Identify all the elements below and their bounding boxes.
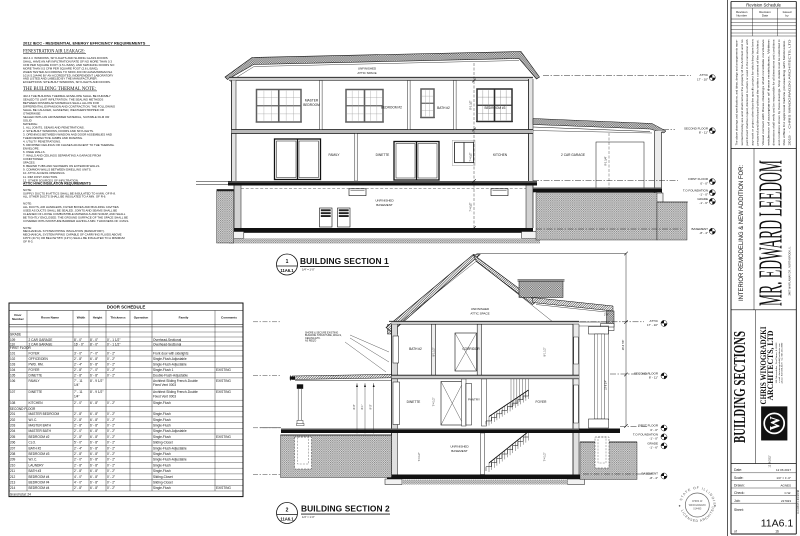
svg-text:2' - 8": 2' - 8" — [74, 368, 82, 372]
svg-text:-1' - 0": -1' - 0" — [649, 437, 658, 441]
svg-text:6' - 8": 6' - 8" — [90, 486, 98, 490]
svg-text:KITCHEN: KITCHEN — [29, 401, 44, 405]
svg-text:6' - 8": 6' - 8" — [90, 452, 98, 456]
svg-text:6' - 8": 6' - 8" — [90, 458, 98, 462]
svg-text:2' - 8": 2' - 8" — [74, 486, 82, 490]
svg-text:6' - 8": 6' - 8" — [90, 374, 98, 378]
svg-text:6' - 8": 6' - 8" — [90, 418, 98, 422]
svg-text:0' - 2": 0' - 2" — [107, 435, 115, 439]
svg-text:201: 201 — [10, 412, 16, 416]
svg-text:4' - 0": 4' - 0" — [74, 475, 82, 479]
svg-text:0' - 2": 0' - 2" — [107, 452, 115, 456]
svg-text:11A6.1: 11A6.1 — [761, 518, 794, 530]
svg-text:Single-Flush-Adjustable: Single-Flush-Adjustable — [153, 429, 187, 433]
svg-text:EXISTING: EXISTING — [216, 379, 231, 383]
svg-text:11A6.1: 11A6.1 — [280, 517, 294, 522]
svg-text:Single-Flush: Single-Flush — [153, 424, 171, 428]
svg-text:110 Oakwood Ave., Des Plaines,: 110 Oakwood Ave., Des Plaines, IL 60016 — [775, 342, 778, 383]
svg-text:Number: Number — [736, 14, 747, 18]
svg-text:0' - 2": 0' - 2" — [107, 401, 115, 405]
svg-text:MR. EDWARD LEEDOM: MR. EDWARD LEEDOM — [753, 160, 790, 306]
svg-text:FAMILY: FAMILY — [29, 379, 41, 383]
svg-text:W: W — [768, 416, 784, 431]
svg-text:11A6.1: 11A6.1 — [280, 268, 294, 273]
svg-text:Width: Width — [77, 315, 86, 319]
svg-text:dimensions shall verify and be: dimensions shall verify and be responsib… — [773, 38, 776, 145]
svg-text:0' - 2": 0' - 2" — [107, 463, 115, 467]
svg-text:1/4": 1/4" — [74, 383, 80, 387]
svg-text:Sliding-Closet: Sliding-Closet — [153, 475, 173, 479]
svg-text:Number: Number — [12, 317, 24, 321]
svg-text:EXISTING: EXISTING — [216, 435, 231, 439]
svg-text:Sliding-Closet: Sliding-Closet — [153, 441, 173, 445]
svg-text:7'-4 1/2": 7'-4 1/2" — [470, 202, 473, 211]
svg-text:1/4" = 1'-0": 1/4" = 1'-0" — [302, 267, 315, 271]
svg-text:16: 16 — [775, 530, 779, 534]
svg-text:7'-4 1/2": 7'-4 1/2" — [544, 452, 547, 461]
svg-text:16' - 0": 16' - 0" — [74, 342, 84, 346]
svg-text:BEDROOM #4: BEDROOM #4 — [29, 486, 50, 490]
svg-text:FOYER: FOYER — [29, 351, 41, 355]
svg-text:2' - 8": 2' - 8" — [74, 435, 82, 439]
svg-text:8'-1 1/2": 8'-1 1/2" — [433, 347, 436, 356]
svg-text:UNFINISHED: UNFINISHED — [375, 198, 394, 202]
svg-text:-8' - 4": -8' - 4" — [649, 476, 658, 480]
svg-text:9'-0": 9'-0" — [370, 404, 373, 409]
svg-text:6' - 8": 6' - 8" — [90, 469, 98, 473]
svg-text:Sheet:: Sheet: — [734, 508, 744, 512]
svg-text:8' - 9 1/2": 8' - 9 1/2" — [90, 379, 103, 383]
svg-text:8' - 0": 8' - 0" — [90, 338, 98, 342]
svg-text:Scale:: Scale: — [734, 476, 743, 480]
svg-text:BASEMENT: BASEMENT — [451, 449, 468, 453]
svg-text:6' - 8": 6' - 8" — [90, 463, 98, 467]
svg-text:Height: Height — [93, 315, 103, 319]
svg-text:Date:: Date: — [734, 468, 742, 472]
svg-text:0' - 2": 0' - 2" — [107, 441, 115, 445]
svg-text:PANTRY: PANTRY — [468, 398, 480, 402]
svg-text:KITCHEN: KITCHEN — [493, 153, 508, 157]
svg-text:BUILDING SECTIONS: BUILDING SECTIONS — [730, 331, 749, 443]
svg-text:0' - 2": 0' - 2" — [107, 475, 115, 479]
svg-text:Family: Family — [179, 315, 189, 319]
svg-text:8'-1 1/2": 8'-1 1/2" — [470, 100, 473, 109]
svg-text:211: 211 — [10, 469, 15, 473]
svg-text:6' - 8": 6' - 8" — [90, 357, 98, 361]
svg-text:COVERED WITH MOISTURE BARRIER: COVERED WITH MOISTURE BARRIER HAVING A M… — [23, 219, 129, 223]
svg-text:MASTER BEDROOM: MASTER BEDROOM — [29, 412, 60, 416]
svg-text:2' - 8": 2' - 8" — [74, 412, 82, 416]
svg-text:part thereof shall be copied,: part thereof shall be copied, disclosed … — [746, 39, 749, 146]
svg-text:Single-Flush: Single-Flush — [153, 486, 171, 490]
svg-text:2' - 0": 2' - 0" — [74, 458, 82, 462]
svg-text:Revision Schedule: Revision Schedule — [746, 2, 781, 7]
svg-text:Drawn:: Drawn: — [734, 484, 745, 488]
svg-text:0' - 2": 0' - 2" — [107, 481, 115, 485]
svg-text:0' - 2": 0' - 2" — [107, 418, 115, 422]
svg-text:EXISTING: EXISTING — [216, 390, 231, 394]
svg-text:2' - 0": 2' - 0" — [74, 429, 82, 433]
svg-text:1/4" = 1'-0": 1/4" = 1'-0" — [776, 476, 791, 480]
svg-text:2012 IECC - RESIDENTIAL ENERGY: 2012 IECC - RESIDENTIAL ENERGY EFFICIENC… — [23, 41, 146, 46]
svg-text:any work or project other than: any work or project other than the speci… — [751, 39, 754, 146]
svg-text:Date: Date — [762, 14, 769, 18]
svg-text:0' - 2": 0' - 2" — [107, 362, 115, 366]
svg-text:3' - 0": 3' - 0" — [74, 351, 82, 355]
svg-text:12 06 2017: 12 06 2017 — [769, 455, 772, 468]
svg-text:Overhead-Sectional: Overhead-Sectional — [153, 338, 181, 342]
svg-text:4' - 0": 4' - 0" — [74, 481, 82, 485]
svg-text:2 CAR GARAGE: 2 CAR GARAGE — [29, 342, 53, 346]
svg-text:AS REQ'D: AS REQ'D — [305, 340, 316, 343]
svg-text:OFFICE/DEN: OFFICE/DEN — [29, 357, 49, 361]
svg-text:0' - 2": 0' - 2" — [107, 429, 115, 433]
svg-text:Single-Flush: Single-Flush — [153, 435, 171, 439]
svg-text:0' - 2": 0' - 2" — [107, 486, 115, 490]
svg-text:17' - 10": 17' - 10" — [697, 77, 708, 81]
svg-text:0' - 2": 0' - 2" — [107, 412, 115, 416]
svg-text:8' - 9 1/2": 8' - 9 1/2" — [90, 390, 103, 394]
svg-text:213: 213 — [10, 481, 16, 485]
svg-text:Single-Flush: Single-Flush — [153, 463, 171, 467]
svg-text:204: 204 — [10, 429, 16, 433]
svg-text:7'-4 1/2": 7'-4 1/2" — [470, 152, 473, 161]
svg-text:BATH #2: BATH #2 — [29, 446, 42, 450]
svg-text:EXISTING: EXISTING — [216, 486, 231, 490]
svg-text:DINETTE: DINETTE — [29, 374, 43, 378]
svg-text:2: 2 — [286, 508, 289, 514]
svg-text:DINETTE: DINETTE — [376, 153, 390, 157]
svg-text:0' - 2": 0' - 2" — [107, 424, 115, 428]
svg-text:BATH #2: BATH #2 — [437, 106, 450, 110]
svg-text:0' - 2": 0' - 2" — [107, 351, 115, 355]
svg-text:BASEMENT: BASEMENT — [376, 203, 393, 207]
svg-text:of: of — [734, 530, 737, 534]
svg-text:205: 205 — [10, 435, 16, 439]
svg-text:2' - 4": 2' - 4" — [74, 362, 82, 366]
svg-text:101: 101 — [10, 351, 16, 355]
svg-text:102: 102 — [10, 357, 16, 361]
svg-text:8'-1 1/2": 8'-1 1/2" — [544, 347, 547, 356]
svg-text:FIRST FLOOR: FIRST FLOOR — [10, 346, 32, 350]
svg-text:1/4": 1/4" — [74, 395, 80, 399]
svg-text:217023: 217023 — [781, 499, 791, 503]
svg-text:6' - 8": 6' - 8" — [90, 441, 98, 445]
svg-text:106: 106 — [10, 379, 16, 383]
svg-text:7'-4 1/2": 7'-4 1/2" — [433, 397, 436, 406]
svg-text:10'-8 3/4": 10'-8 3/4" — [605, 380, 608, 390]
svg-text:UNFINISHED: UNFINISHED — [450, 444, 469, 448]
svg-text:prepared and developed without: prepared and developed without the writt… — [757, 39, 760, 146]
svg-text:103: 103 — [10, 362, 16, 366]
svg-text:Sliding-Closet: Sliding-Closet — [153, 481, 173, 485]
svg-text:this office for approval befor: this office for approval before proceedi… — [783, 39, 786, 146]
svg-text:Single-Flush-Adjustable: Single-Flush-Adjustable — [153, 458, 187, 462]
svg-text:0' - 0": 0' - 0" — [650, 428, 658, 432]
svg-text:6' - 8": 6' - 8" — [90, 429, 98, 433]
svg-text:6' - 8": 6' - 8" — [90, 412, 98, 416]
svg-text:8'-0": 8'-0" — [353, 404, 356, 409]
svg-text:12 06 2017: 12 06 2017 — [776, 468, 791, 472]
svg-text:BEDROOM #4: BEDROOM #4 — [29, 481, 50, 485]
svg-text:W.I.C.: W.I.C. — [29, 458, 38, 462]
svg-text:Fixed Vent 0003: Fixed Vent 0003 — [153, 383, 176, 387]
svg-text:ARCHITECTS, LTD: ARCHITECTS, LTD — [766, 330, 775, 400]
svg-text:207: 207 — [10, 446, 16, 450]
svg-text:2' - 8": 2' - 8" — [74, 469, 82, 473]
svg-text:8' - 0": 8' - 0" — [74, 338, 82, 342]
svg-text:6' - 8": 6' - 8" — [90, 446, 98, 450]
svg-text:1/4" = 1'-0": 1/4" = 1'-0" — [302, 515, 315, 519]
svg-text:UNFINISHED: UNFINISHED — [471, 307, 490, 311]
svg-text:014485: 014485 — [693, 508, 702, 511]
svg-text:AGNES: AGNES — [780, 484, 791, 488]
svg-text:OF R-3.: OF R-3. — [23, 240, 33, 244]
svg-text:W.I.C.: W.I.C. — [29, 418, 38, 422]
svg-text:0' - 2": 0' - 2" — [107, 374, 115, 378]
svg-text:2' - 8": 2' - 8" — [74, 452, 82, 456]
svg-text:0' - 2": 0' - 2" — [107, 458, 115, 462]
svg-text:2 CAR GARAGE: 2 CAR GARAGE — [29, 338, 53, 342]
svg-text:sented thereby are and shall r: sented thereby are and shall remain the … — [741, 38, 744, 145]
svg-text:105: 105 — [10, 374, 16, 378]
svg-text:BEDROOM #2: BEDROOM #2 — [381, 105, 402, 109]
svg-text:Grand total: 24: Grand total: 24 — [10, 492, 31, 496]
svg-text:1: 1 — [286, 259, 289, 265]
svg-text:C.W.: C.W. — [785, 491, 792, 495]
svg-text:2' - 0": 2' - 0" — [74, 401, 82, 405]
svg-text:209: 209 — [10, 458, 16, 462]
svg-text:-8' - 4": -8' - 4" — [699, 231, 708, 235]
svg-text:FAMILY: FAMILY — [328, 153, 340, 157]
svg-text:104: 104 — [10, 368, 16, 372]
svg-text:e-mail: chriswinogradzki@archi: e-mail: chriswinogradzki@architects.com — [778, 343, 781, 383]
svg-text:Room Name: Room Name — [41, 315, 59, 319]
svg-text:SECOND FLOOR: SECOND FLOOR — [10, 407, 36, 411]
svg-text:DINETTE: DINETTE — [407, 400, 421, 404]
svg-text:phone: 847-699-4170 fax: 847: phone: 847-699-4170 fax: 847-215-0880 — [782, 342, 784, 383]
svg-text:2' - 8": 2' - 8" — [74, 463, 82, 467]
svg-text:Single-Flush-Adjustable: Single-Flush-Adjustable — [153, 357, 187, 361]
svg-text:208: 208 — [10, 452, 16, 456]
svg-text:PWD. RM.: PWD. RM. — [29, 362, 44, 366]
svg-text:6' - 8": 6' - 8" — [90, 475, 98, 479]
svg-text:ATTIC SPACE: ATTIC SPACE — [357, 71, 376, 75]
svg-text:210: 210 — [10, 463, 16, 467]
svg-text:202: 202 — [10, 418, 16, 422]
svg-text:FOYER: FOYER — [536, 400, 548, 404]
svg-text:Job:: Job: — [734, 499, 740, 503]
svg-text:CLO.: CLO. — [29, 441, 37, 445]
svg-text:7'-4 1/2": 7'-4 1/2" — [418, 452, 421, 461]
svg-text:8'-1": 8'-1" — [361, 404, 364, 409]
svg-text:BEDROOM: BEDROOM — [303, 103, 320, 107]
svg-text:BATH #3: BATH #3 — [29, 469, 42, 473]
svg-text:2' - 4": 2' - 4" — [74, 446, 82, 450]
svg-text:9'-1 1/4": 9'-1 1/4" — [605, 156, 608, 165]
svg-text:BUILDING SECTION 2: BUILDING SECTION 2 — [301, 504, 390, 514]
svg-text:MASTER BATH: MASTER BATH — [29, 429, 52, 433]
svg-text:0' - 2": 0' - 2" — [107, 446, 115, 450]
svg-text:ALL OTHER DUCTS SHALL BE INSUL: ALL OTHER DUCTS SHALL BE INSULATED TO A … — [23, 195, 106, 199]
svg-text:Single-Flush-Adjustable: Single-Flush-Adjustable — [153, 362, 187, 366]
svg-text:2 CAR GARAGE: 2 CAR GARAGE — [561, 153, 585, 157]
svg-text:Single-Flush: Single-Flush — [153, 469, 171, 473]
svg-text:BEDROOM #3: BEDROOM #3 — [485, 106, 506, 110]
svg-text:Operation: Operation — [134, 315, 149, 319]
svg-text:105°F (41°C) OR BELOW 55°F (13: 105°F (41°C) OR BELOW 55°F (13°C) SHALL … — [23, 236, 125, 240]
svg-text:0' - 0": 0' - 0" — [700, 181, 708, 185]
svg-text:Single-Flush-Adjustable: Single-Flush-Adjustable — [153, 446, 187, 450]
svg-text:7' - 0": 7' - 0" — [90, 368, 98, 372]
svg-text:SEALED WITH AN AIR BARRIER MAT: SEALED WITH AN AIR BARRIER MATERIAL, SUI… — [23, 115, 109, 119]
svg-text:6' - 8": 6' - 8" — [90, 435, 98, 439]
svg-text:203: 203 — [10, 424, 16, 428]
svg-text:212: 212 — [10, 475, 16, 479]
svg-text:by: by — [785, 14, 789, 18]
svg-text:WINOGRADZKI: WINOGRADZKI — [689, 504, 706, 507]
svg-text:Single-Flush 1: Single-Flush 1 — [153, 368, 174, 372]
svg-text:3467 WHIRLAWAY DR., NORTHBROOK: 3467 WHIRLAWAY DR., NORTHBROOK, IL — [789, 246, 792, 296]
svg-text:206: 206 — [10, 441, 16, 445]
svg-text:2015 - CHRIS WINOGRADZKI ARC: 2015 - CHRIS WINOGRADZKI ARCHITECTS, LTD — [789, 39, 792, 146]
svg-text:6' - 8": 6' - 8" — [90, 481, 98, 485]
svg-text:0' - 1 1/2": 0' - 1 1/2" — [107, 338, 120, 342]
svg-text:108: 108 — [10, 401, 16, 405]
svg-text:Fixed Vent 0003: Fixed Vent 0003 — [153, 395, 176, 399]
svg-text:evidence of acceptance of thes: evidence of acceptance of these restrict… — [767, 38, 770, 145]
svg-text:0' - 1 1/2": 0' - 1 1/2" — [107, 342, 120, 346]
svg-text:BATH #2: BATH #2 — [409, 347, 422, 351]
svg-text:2' - 8": 2' - 8" — [74, 418, 82, 422]
svg-text:214: 214 — [10, 486, 16, 490]
svg-text:2' - 8": 2' - 8" — [74, 374, 82, 378]
svg-text:Check:: Check: — [734, 491, 745, 495]
svg-text:Double-Flush-Adjustable: Double-Flush-Adjustable — [153, 374, 188, 378]
svg-text:Single-Flush: Single-Flush — [153, 452, 171, 456]
svg-text:CHRIS W.: CHRIS W. — [692, 500, 703, 503]
svg-text:0' - 2": 0' - 2" — [107, 357, 115, 361]
svg-text:8' - 11": 8' - 11" — [699, 131, 708, 135]
svg-text:and conditions shown by these: and conditions shown by these drawings. … — [778, 39, 781, 146]
svg-text:Single-Flush: Single-Flush — [153, 401, 171, 405]
svg-text:2' - 8": 2' - 8" — [74, 357, 82, 361]
svg-text:6' - 8": 6' - 8" — [90, 424, 98, 428]
svg-text:GRADE: GRADE — [10, 333, 21, 337]
svg-text:DINETTE: DINETTE — [29, 390, 43, 394]
svg-text:17' - 10": 17' - 10" — [647, 323, 658, 327]
svg-text:0' - 2": 0' - 2" — [107, 469, 115, 473]
svg-text:107: 107 — [10, 390, 16, 394]
svg-text:FOYER: FOYER — [29, 368, 41, 372]
svg-text:Front door with sidelights: Front door with sidelights — [153, 351, 189, 355]
svg-text:Single-Flush: Single-Flush — [153, 418, 171, 422]
svg-text:The above drawings and specifi: The above drawings and specifications, a… — [736, 39, 739, 145]
svg-text:2' - 8": 2' - 8" — [74, 424, 82, 428]
svg-text:MASTER BATH: MASTER BATH — [29, 424, 52, 428]
svg-text:-1' - 6": -1' - 6" — [649, 446, 658, 450]
svg-text:EXCEPTIONS: SITE-BUILT WINDOWS: EXCEPTIONS: SITE-BUILT WINDOWS, SKYLIGHT… — [23, 80, 111, 84]
svg-text:-1' - 6": -1' - 6" — [699, 201, 708, 205]
svg-text:6' - 8": 6' - 8" — [90, 401, 98, 405]
svg-text:ATTIC SPACE: ATTIC SPACE — [470, 312, 489, 316]
svg-text:2'-4": 2'-4" — [604, 314, 609, 317]
svg-text:BEDROOM #2: BEDROOM #2 — [29, 435, 50, 439]
svg-text:Thickness: Thickness — [110, 315, 125, 319]
svg-text:Comments: Comments — [221, 315, 237, 319]
svg-text:-1' - 0": -1' - 0" — [699, 193, 708, 197]
svg-text:ATTIC HVAC INSULATION REQUIREM: ATTIC HVAC INSULATION REQUIREMENTS — [23, 182, 92, 186]
svg-text:8' - 11": 8' - 11" — [649, 376, 658, 380]
svg-text:INTERIOR REMODELING & NEW ADDI: INTERIOR REMODELING & NEW ADDITION FOR: — [738, 165, 745, 301]
svg-text:Visual contact with these draw: Visual contact with these drawings shall… — [762, 38, 765, 145]
svg-text:CORRIDOR: CORRIDOR — [462, 347, 480, 351]
svg-text:16'-6 7/8": 16'-6 7/8" — [622, 340, 625, 351]
svg-text:EXISTING: EXISTING — [216, 368, 231, 372]
svg-text:5' - 0": 5' - 0" — [74, 441, 82, 445]
svg-text:109: 109 — [10, 338, 16, 342]
svg-text:Overhead-Sectional: Overhead-Sectional — [153, 342, 181, 346]
svg-text:Single-Flush: Single-Flush — [153, 412, 171, 416]
svg-text:BEDROOM #3: BEDROOM #3 — [29, 452, 50, 456]
svg-text:BEDROOM #4: BEDROOM #4 — [29, 475, 50, 479]
svg-text:7' - 0": 7' - 0" — [90, 351, 98, 355]
svg-text:BUILDING SECTION 1: BUILDING SECTION 1 — [300, 256, 389, 266]
svg-text:LAUNDRY: LAUNDRY — [29, 463, 45, 467]
svg-text:0' - 2": 0' - 2" — [107, 368, 115, 372]
svg-text:6' - 8": 6' - 8" — [90, 362, 98, 366]
svg-text:DOOR SCHEDULE: DOOR SCHEDULE — [107, 305, 146, 310]
svg-text:8' - 0": 8' - 0" — [90, 342, 98, 346]
